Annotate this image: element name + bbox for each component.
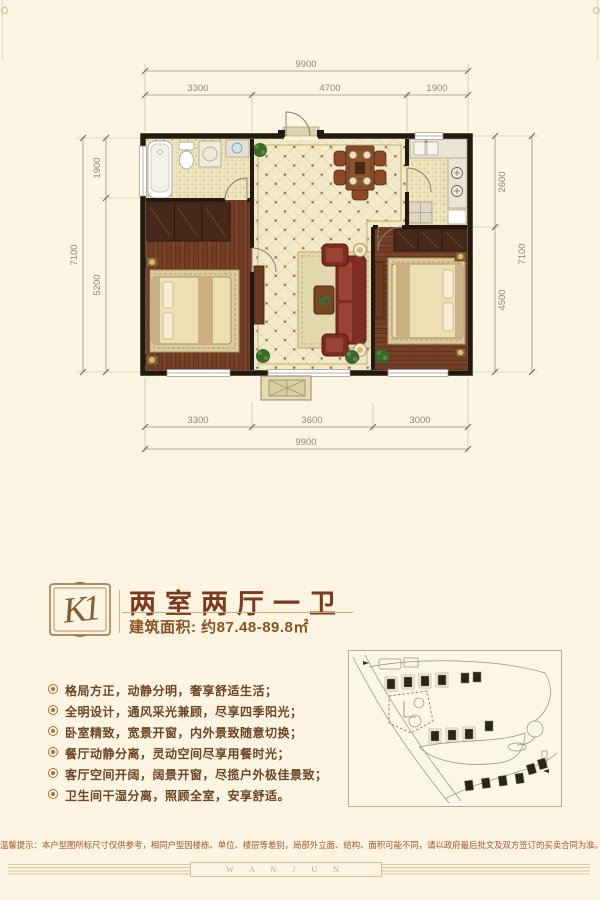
- unit-area: 建筑面积: 约87.48-89.8㎡: [129, 616, 309, 637]
- bullet-icon: [48, 726, 58, 736]
- fridge: [448, 210, 466, 224]
- feature-text: 卫生间干湿分离，照顾全室，安享舒适。: [65, 787, 290, 804]
- floor-plan-drawing: 9900 3300 4700 1900 3300 3600 3000 9900 …: [0, 0, 600, 460]
- bed-left: [150, 270, 239, 352]
- dim-right-seg-2: 4500: [497, 289, 508, 310]
- living-window: [268, 370, 350, 377]
- feature-item: 格局方正，动静分明，奢享舒适生活；: [48, 682, 328, 695]
- unit-badge: K1: [47, 581, 113, 639]
- tv-cabinet-living: [254, 266, 264, 324]
- dim-left-seg-1: 1900: [92, 157, 103, 178]
- bathtub: [148, 141, 172, 198]
- dim-bottom-seg-1: 3300: [187, 415, 208, 426]
- feature-text: 卧室精致，宽景开窗，内外景致随意切换；: [65, 724, 303, 741]
- feature-item: 卧室精致，宽景开窗，内外景致随意切换；: [48, 724, 328, 737]
- bedroom-left-window: [167, 370, 230, 377]
- bullet-icon: [48, 684, 58, 694]
- dim-right-seg-1: 2600: [497, 171, 508, 192]
- footer-stripes-left: [8, 864, 190, 877]
- site-map-drawing: [349, 651, 561, 806]
- site-map: [348, 650, 562, 807]
- dim-left-total: 7100: [69, 244, 80, 265]
- sofa-set: [298, 244, 372, 357]
- footer-brand: W A N J U N: [190, 862, 382, 877]
- bed-right: [388, 258, 465, 344]
- title-underline: [122, 612, 353, 613]
- feature-text: 格局方正，动静分明，奢享舒适生活；: [65, 682, 278, 699]
- dim-bottom-seg-3: 3000: [409, 415, 430, 426]
- bullet-icon: [48, 768, 58, 778]
- washing-machine: [199, 141, 221, 167]
- site-highlight: [389, 691, 433, 733]
- dim-bottom-seg-2: 3600: [301, 415, 322, 426]
- feature-text: 餐厅动静分离，灵动空间尽享用餐时光；: [65, 745, 290, 762]
- site-entrance-arrows: [363, 661, 549, 773]
- dim-left-seg-2: 5200: [92, 274, 103, 295]
- title-divider: [119, 590, 120, 633]
- site-buildings: [385, 672, 548, 791]
- feature-text: 客厅空间开阔，阔景开窗，尽揽户外极佳景致；: [65, 766, 328, 783]
- feature-item: 卫生间干湿分离，照顾全室，安享舒适。: [48, 787, 328, 800]
- wardrobe-left: [147, 203, 230, 241]
- toilet: [179, 142, 194, 169]
- wardrobe-right: [394, 229, 466, 251]
- entry-door: [278, 112, 324, 140]
- bullet-icon: [48, 705, 58, 715]
- bathroom-sink: [226, 140, 249, 157]
- tv-cabinet-bedroom: [375, 262, 384, 318]
- feature-text: 全明设计，通风采光兼顾，尽享四季阳光；: [65, 703, 303, 720]
- floor-plan-poster: 9900 3300 4700 1900 3300 3600 3000 9900 …: [0, 0, 600, 900]
- bedroom-right-window: [388, 370, 448, 377]
- feature-item: 全明设计，通风采光兼顾，尽享四季阳光；: [48, 703, 328, 716]
- dim-top-seg-1: 3300: [187, 83, 208, 94]
- disclaimer-text: 温馨提示：本户型图所标尺寸仅供参考，相同户型因楼栋、单位、楼层等差别，局部外立面…: [0, 839, 600, 851]
- feature-item: 客厅空间开阔，阔景开窗，尽揽户外极佳景致；: [48, 766, 328, 779]
- unit-badge-label: K1: [60, 587, 100, 631]
- footer-stripes-right: [382, 864, 590, 877]
- dim-right-total: 7100: [517, 243, 528, 264]
- dim-bottom-total: 9900: [295, 437, 316, 448]
- bullet-icon: [48, 789, 58, 799]
- feature-list: 格局方正，动静分明，奢享舒适生活； 全明设计，通风采光兼顾，尽享四季阳光； 卧室…: [48, 682, 328, 808]
- feature-item: 餐厅动静分离，灵动空间尽享用餐时光；: [48, 745, 328, 758]
- dim-top-total: 9900: [295, 59, 316, 70]
- dim-top-seg-3: 1900: [426, 83, 447, 94]
- entry-porch: [261, 376, 311, 400]
- kitchen-window: [415, 133, 443, 140]
- entry-cabinet: [409, 202, 432, 223]
- site-roads: [353, 655, 557, 803]
- bullet-icon: [48, 747, 58, 757]
- bathroom-window: [140, 146, 147, 196]
- dim-top-seg-2: 4700: [319, 83, 340, 94]
